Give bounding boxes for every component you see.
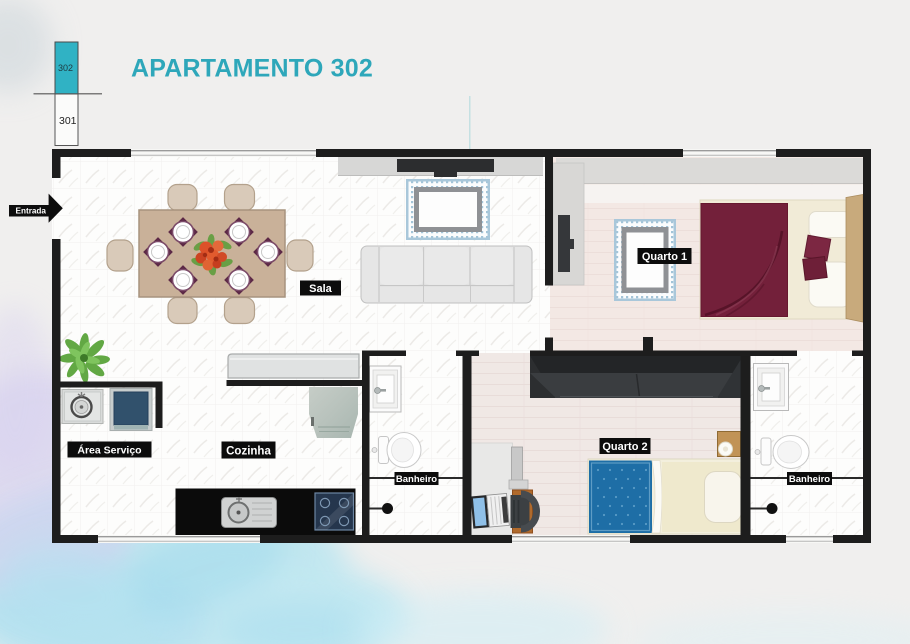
svg-text:Sala: Sala	[309, 283, 333, 295]
svg-text:301: 301	[59, 115, 77, 127]
svg-text:Quarto 2: Quarto 2	[602, 441, 647, 453]
svg-text:Cozinha: Cozinha	[226, 446, 271, 458]
svg-text:Entrada: Entrada	[16, 207, 47, 216]
svg-text:Área Serviço: Área Serviço	[77, 444, 141, 457]
svg-text:Quarto 1: Quarto 1	[642, 251, 687, 263]
svg-text:Banheiro: Banheiro	[396, 474, 437, 485]
svg-text:APARTAMENTO 302: APARTAMENTO 302	[131, 55, 373, 83]
svg-text:302: 302	[58, 63, 73, 73]
svg-text:Banheiro: Banheiro	[789, 474, 830, 485]
